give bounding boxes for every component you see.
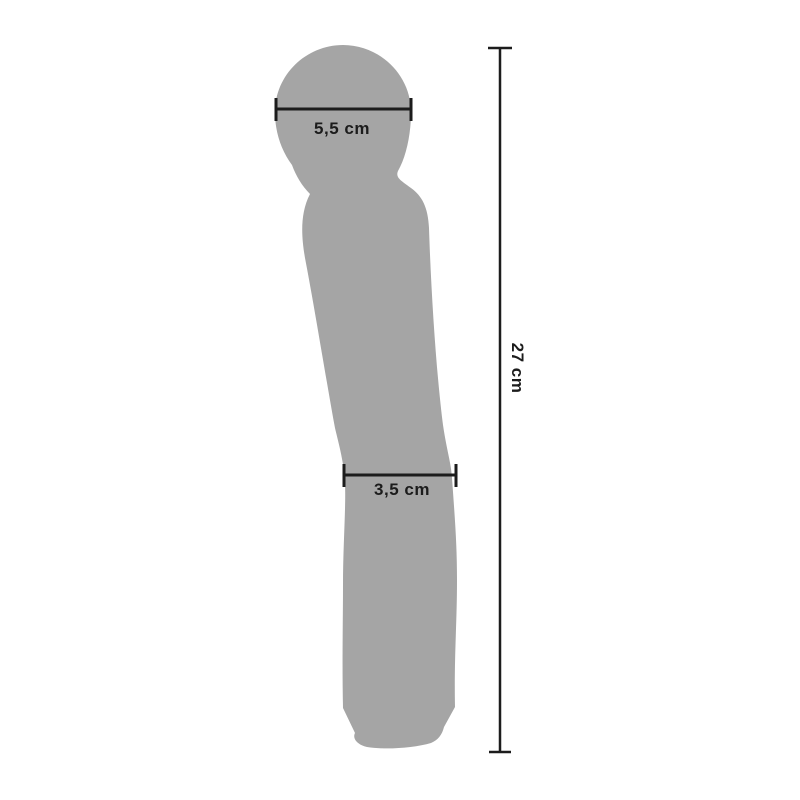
product-silhouette xyxy=(275,45,457,748)
head-width-label: 5,5 cm xyxy=(314,119,370,139)
shaft-width-label: 3,5 cm xyxy=(374,480,430,500)
total-length-dimension-line xyxy=(488,48,512,752)
product-dimensions-diagram: 5,5 cm 3,5 cm 27 cm xyxy=(0,0,800,800)
total-length-label: 27 cm xyxy=(507,343,527,394)
diagram-canvas xyxy=(0,0,800,800)
